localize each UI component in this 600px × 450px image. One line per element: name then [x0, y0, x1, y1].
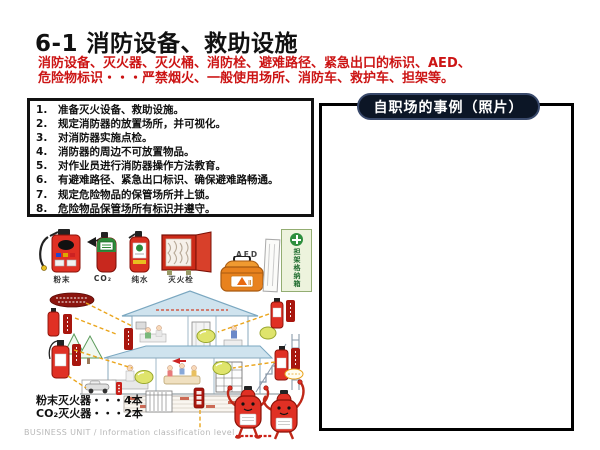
subtitle-line2: 危险物标识・・・严禁烟火、一般使用场所、消防车、救护车、担架等。 [38, 71, 583, 86]
checklist-box: 准备灭火设备、救助设施。 规定消防器的放置场所，并可视化。 对消防器实施点检。 … [27, 98, 314, 217]
checklist-item: 有避难路径、紧急出口标识、确保避难路畅通。 [51, 173, 311, 187]
sign-text: 担架格纳箱 [293, 248, 300, 288]
house-roof [122, 291, 258, 316]
photo-placeholder-box [319, 103, 574, 431]
checklist: 准备灭火设备、救助设施。 规定消防器的放置场所，并可视化。 对消防器实施点检。 … [30, 103, 311, 216]
subtitle-line1: 消防设备、灭火器、灭火桶、消防栓、避难路径、紧急出口的标识、AED、 [38, 56, 583, 71]
right-extinguisher-top [271, 298, 295, 328]
checklist-item: 对作业员进行消防器操作方法教育。 [51, 159, 311, 173]
checklist-item: 规定消防器的放置场所，并可视化。 [51, 117, 311, 131]
slide: 6-1 消防设备、救助设施 消防设备、灭火器、灭火桶、消防栓、避难路径、紧急出口… [0, 0, 600, 450]
stretcher-panel [263, 239, 281, 293]
fire-hydrant-cabinet-icon [158, 231, 216, 277]
left-extinguisher-small [48, 308, 72, 336]
photo-panel-header: 自职场的事例（照片） [357, 93, 540, 120]
page-title: 6-1 消防设备、救助设施 [35, 24, 298, 58]
stretcher-storage-sign: 担架格纳箱 [281, 229, 312, 292]
label-powder: 粉末 [39, 274, 85, 285]
center-red-tag [124, 328, 133, 350]
label-hydrant: 灭火栓 [158, 274, 204, 285]
footer-classification: BUSINESS UNIT / Information classificati… [24, 428, 235, 437]
checklist-item: 准备灭火设备、救助设施。 [51, 103, 311, 117]
powder-extinguisher-icon [36, 227, 84, 275]
label-water: 纯水 [117, 274, 163, 285]
first-floor [108, 358, 260, 394]
green-cross-icon [290, 233, 303, 246]
count-powder: 粉末灭火器・・・4本 [36, 394, 143, 407]
left-extinguisher-large [49, 340, 81, 378]
checklist-item: 对消防器实施点检。 [51, 131, 311, 145]
checklist-item: 危险物品保管场所有标识并遵守。 [51, 202, 311, 216]
co2-extinguisher-icon [84, 230, 120, 274]
red-balloon-label [50, 293, 94, 307]
checklist-item: 规定危险物品的保管场所并上锁。 [51, 188, 311, 202]
garage-car [82, 380, 122, 395]
subtitle: 消防设备、灭火器、灭火桶、消防栓、避难路径、紧急出口的标识、AED、 危险物标识… [38, 56, 583, 86]
red-banner-sign [194, 388, 204, 408]
checklist-item: 消防器的周边不可放置物品。 [51, 145, 311, 159]
extinguisher-counts: 粉末灭火器・・・4本 CO₂灭火器・・・2本 [36, 394, 143, 420]
water-extinguisher-icon [122, 228, 156, 274]
count-co2: CO₂灭火器・・・2本 [36, 407, 143, 420]
trees [64, 334, 102, 364]
